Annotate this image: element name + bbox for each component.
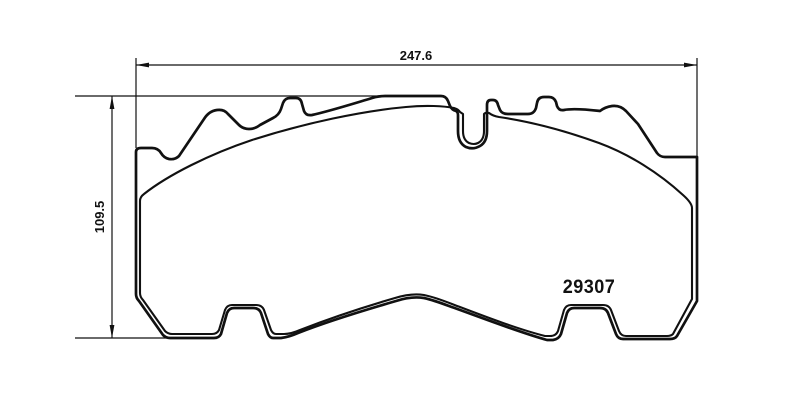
height-dimension-label: 109.5 — [92, 201, 107, 234]
brake-pad-technical-drawing: 247.6 109.5 29307 — [0, 0, 800, 400]
width-dimension-label: 247.6 — [400, 48, 433, 63]
pad-inner-contour — [140, 106, 692, 336]
width-arrow-right — [684, 63, 697, 68]
height-arrow-top — [110, 96, 115, 109]
height-arrow-bottom — [110, 325, 115, 338]
width-arrow-left — [136, 63, 149, 68]
drawing-canvas: 247.6 109.5 29307 — [0, 0, 800, 400]
pad-outer-contour — [136, 96, 697, 340]
width-dimension — [136, 58, 697, 157]
height-dimension — [75, 96, 390, 338]
part-number-label: 29307 — [563, 276, 616, 298]
